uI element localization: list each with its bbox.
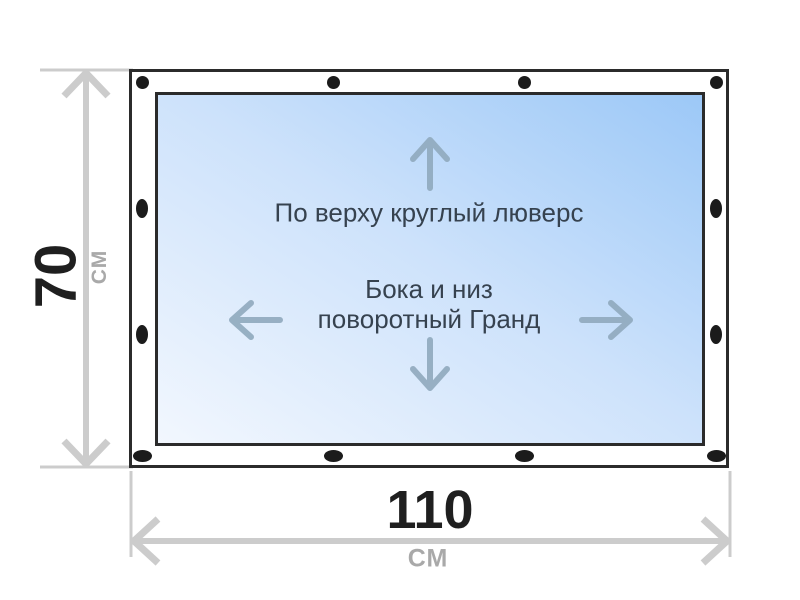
grommet-top-2 <box>327 76 340 89</box>
fastener-left-2 <box>136 325 148 344</box>
sides-annotation-line2: поворотный Гранд <box>318 304 541 334</box>
fastener-bottom-1 <box>133 450 152 462</box>
size-diagram-canvas: По верху круглый люверс Бока и низ повор… <box>0 0 800 600</box>
fastener-right-2 <box>710 325 722 344</box>
top-edge-annotation: По верху круглый люверс <box>275 198 584 229</box>
fastener-bottom-4 <box>707 450 726 462</box>
width-value: 110 <box>386 479 473 541</box>
width-unit: СМ <box>408 545 449 574</box>
grommet-top-1 <box>136 76 149 89</box>
height-value: 70 <box>23 244 90 309</box>
fastener-right-1 <box>710 199 722 218</box>
grommet-top-3 <box>518 76 531 89</box>
width-arrow-left-icon <box>134 519 158 563</box>
width-arrow-right-icon <box>703 519 727 563</box>
arrow-right-icon <box>578 298 636 342</box>
height-arrow-down-icon <box>64 441 108 464</box>
fastener-bottom-3 <box>515 450 534 462</box>
arrow-left-icon <box>226 298 284 342</box>
sides-annotation: Бока и низ поворотный Гранд <box>318 274 541 334</box>
arrow-down-icon <box>408 336 452 394</box>
height-unit: СМ <box>88 250 112 284</box>
fastener-bottom-2 <box>324 450 343 462</box>
height-arrow-up-icon <box>64 73 108 96</box>
sides-annotation-line1: Бока и низ <box>318 274 541 304</box>
grommet-top-4 <box>710 76 723 89</box>
arrow-up-icon <box>408 134 452 192</box>
fastener-left-1 <box>136 199 148 218</box>
